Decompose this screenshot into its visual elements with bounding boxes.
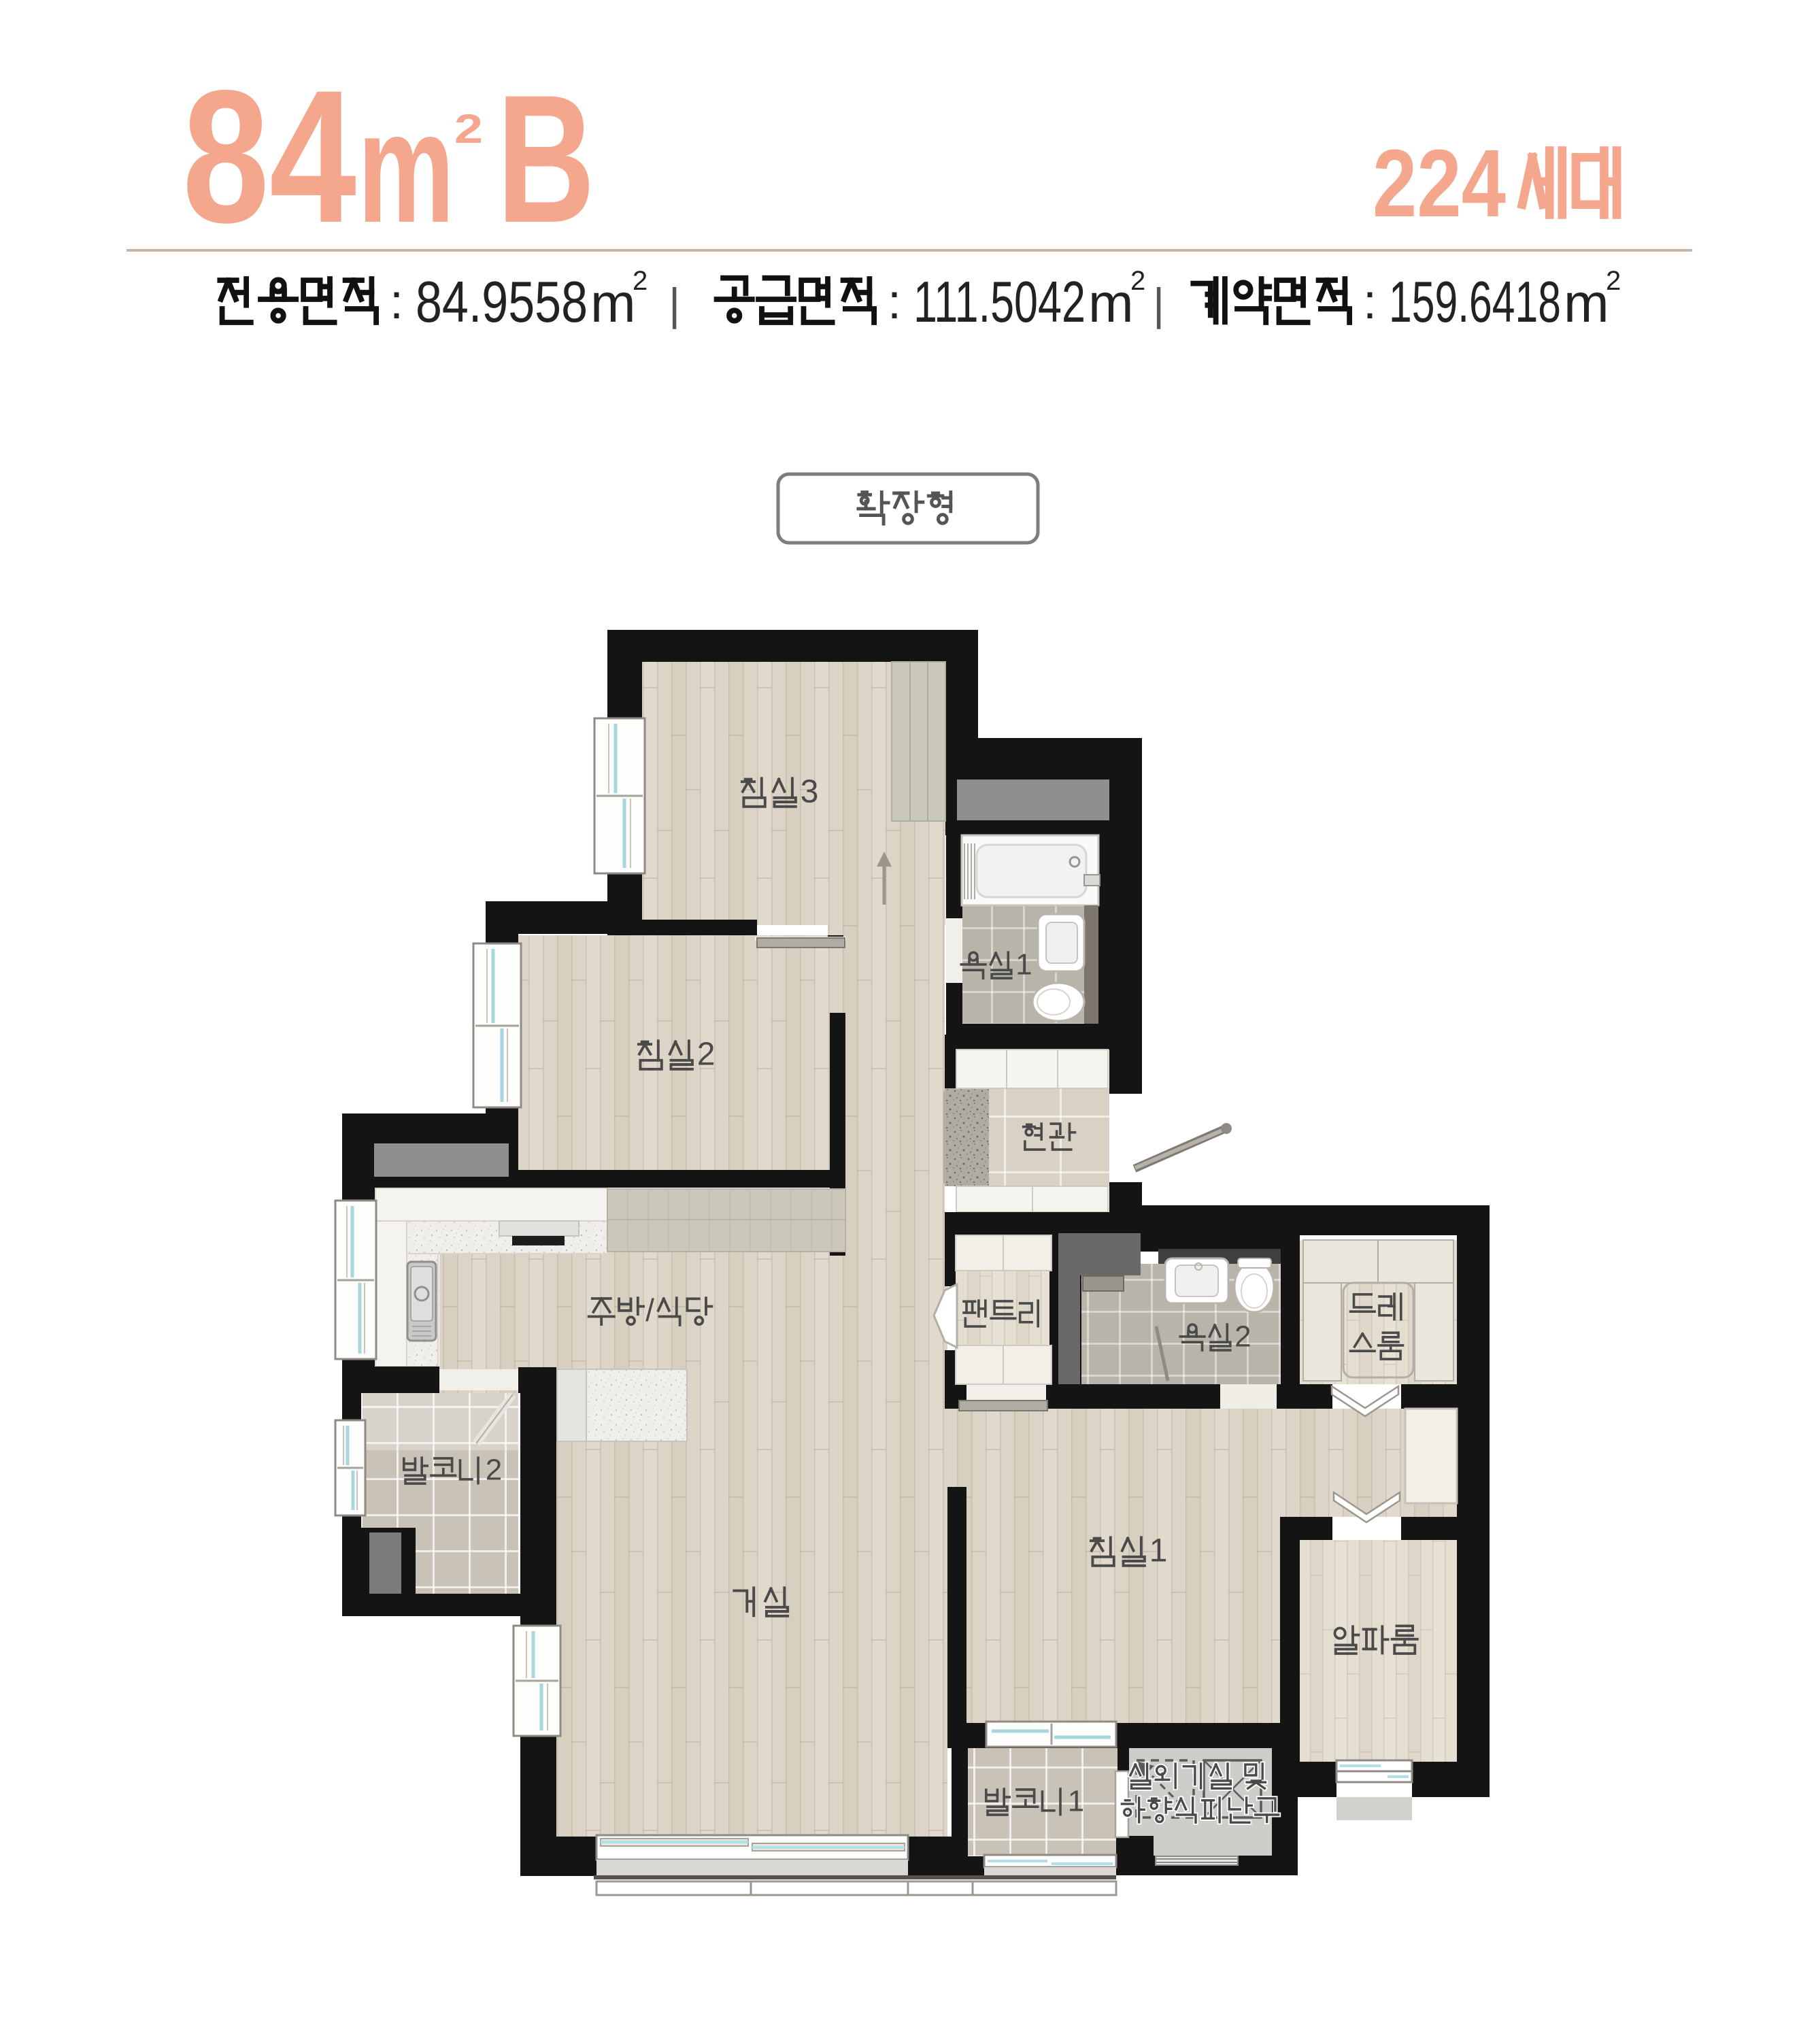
svg-text:84: 84 bbox=[182, 50, 357, 262]
svg-text:111.5042: 111.5042 bbox=[913, 270, 1086, 335]
svg-text:84.9558: 84.9558 bbox=[416, 270, 588, 335]
svg-text:|: | bbox=[1153, 279, 1164, 329]
svg-text:2: 2 bbox=[1606, 266, 1621, 296]
svg-text:B: B bbox=[497, 56, 595, 261]
svg-text:m: m bbox=[1564, 273, 1609, 333]
svg-text:/: / bbox=[645, 1292, 654, 1328]
svg-text:224: 224 bbox=[1373, 129, 1506, 237]
svg-text:1: 1 bbox=[1149, 1532, 1168, 1569]
svg-text:m: m bbox=[590, 273, 636, 333]
svg-text:2: 2 bbox=[486, 1453, 502, 1486]
svg-text:2: 2 bbox=[633, 266, 648, 296]
svg-text:|: | bbox=[669, 279, 680, 329]
svg-text::: : bbox=[888, 275, 901, 329]
svg-text:2: 2 bbox=[1130, 266, 1145, 296]
svg-text:2: 2 bbox=[454, 106, 483, 152]
svg-text:2: 2 bbox=[1234, 1320, 1251, 1353]
svg-text:159.6418: 159.6418 bbox=[1389, 270, 1561, 335]
svg-text:1: 1 bbox=[1015, 948, 1032, 981]
svg-text::: : bbox=[1363, 275, 1377, 329]
svg-text:m: m bbox=[1088, 273, 1134, 333]
svg-text:m: m bbox=[358, 80, 454, 256]
svg-text:2: 2 bbox=[697, 1036, 716, 1072]
svg-text:1: 1 bbox=[1068, 1784, 1084, 1817]
svg-text::: : bbox=[390, 275, 403, 329]
svg-text:3: 3 bbox=[801, 773, 819, 809]
